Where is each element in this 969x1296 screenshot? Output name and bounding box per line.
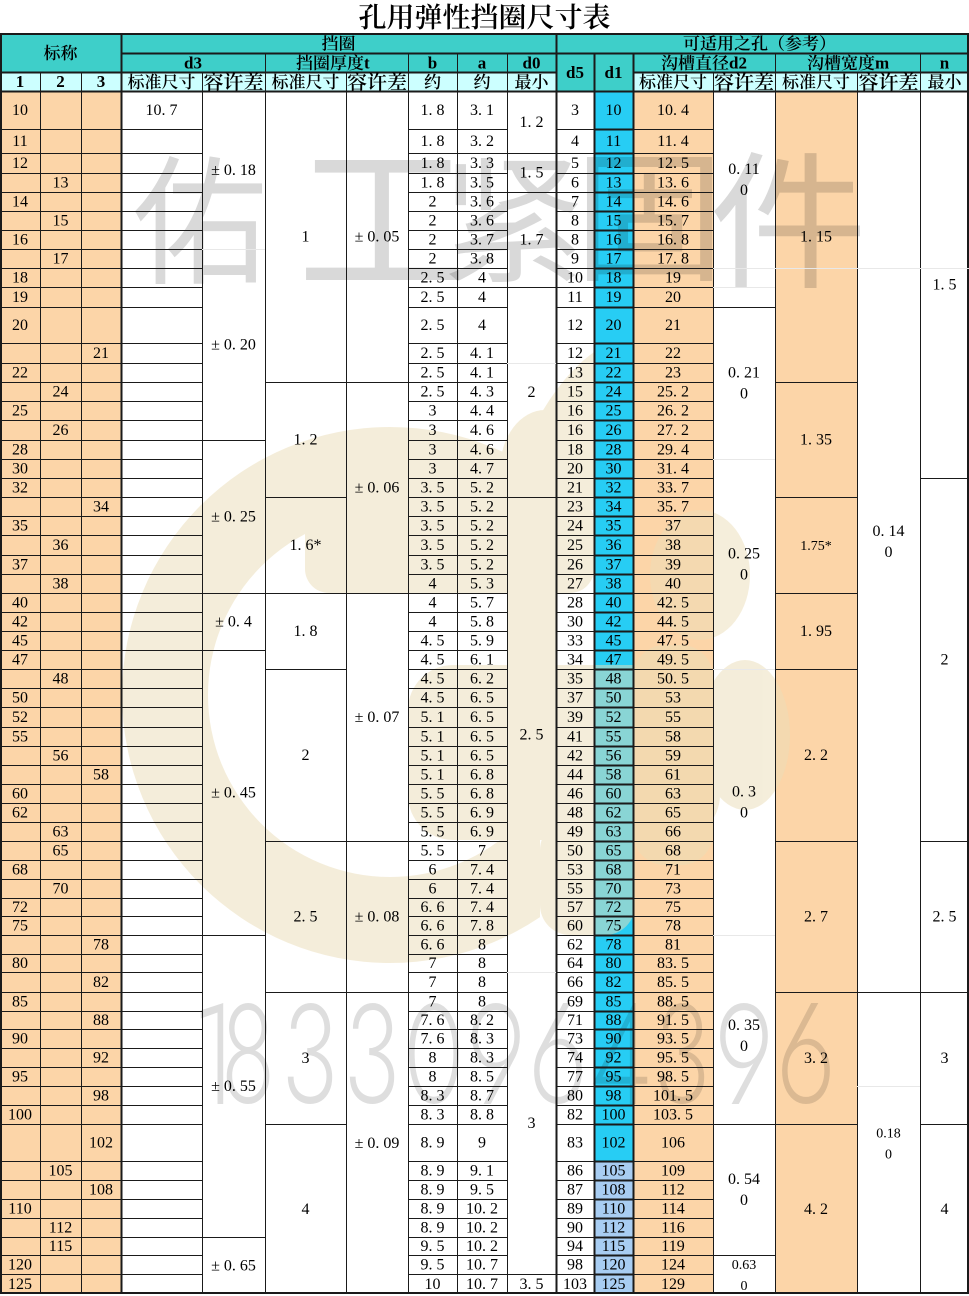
svg-text:0: 0 xyxy=(740,1038,748,1055)
svg-text:69: 69 xyxy=(567,994,583,1011)
svg-text:6. 5: 6. 5 xyxy=(470,729,494,746)
svg-text:46: 46 xyxy=(567,786,583,803)
svg-text:15: 15 xyxy=(53,213,69,230)
svg-text:63: 63 xyxy=(53,824,69,841)
svg-text:4: 4 xyxy=(478,317,486,334)
svg-text:± 0. 4: ± 0. 4 xyxy=(215,614,252,631)
svg-text:13: 13 xyxy=(53,175,69,192)
svg-text:6. 9: 6. 9 xyxy=(470,805,494,822)
svg-text:62: 62 xyxy=(606,805,622,822)
svg-text:20: 20 xyxy=(665,289,681,306)
svg-text:100: 100 xyxy=(8,1107,32,1124)
svg-text:13: 13 xyxy=(606,175,622,192)
svg-text:32: 32 xyxy=(12,480,28,497)
svg-text:2. 5: 2. 5 xyxy=(933,909,957,926)
svg-text:40: 40 xyxy=(606,595,622,612)
svg-text:65: 65 xyxy=(665,805,681,822)
svg-text:± 0. 07: ± 0. 07 xyxy=(355,709,400,726)
svg-text:2. 5: 2. 5 xyxy=(421,345,445,362)
svg-text:108: 108 xyxy=(602,1182,626,1199)
svg-text:6. 9: 6. 9 xyxy=(470,824,494,841)
svg-text:40: 40 xyxy=(12,595,28,612)
svg-text:2. 5: 2. 5 xyxy=(421,384,445,401)
svg-text:7. 4: 7. 4 xyxy=(470,899,494,916)
svg-text:0: 0 xyxy=(885,1148,892,1163)
svg-text:55: 55 xyxy=(12,729,28,746)
svg-text:85: 85 xyxy=(12,994,28,1011)
svg-text:80: 80 xyxy=(567,1088,583,1105)
svg-text:62: 62 xyxy=(567,937,583,954)
svg-text:10. 2: 10. 2 xyxy=(466,1220,498,1237)
svg-text:3. 7: 3. 7 xyxy=(470,232,494,249)
svg-text:81: 81 xyxy=(665,937,681,954)
svg-text:42: 42 xyxy=(567,748,583,765)
svg-text:13. 6: 13. 6 xyxy=(657,175,689,192)
svg-text:21: 21 xyxy=(567,480,583,497)
svg-text:87: 87 xyxy=(567,1182,583,1199)
svg-text:22: 22 xyxy=(665,345,681,362)
svg-text:1. 2: 1. 2 xyxy=(294,432,318,449)
svg-text:77: 77 xyxy=(567,1069,583,1086)
svg-text:14: 14 xyxy=(12,194,28,211)
svg-text:65: 65 xyxy=(606,843,622,860)
svg-text:6. 6: 6. 6 xyxy=(421,937,445,954)
svg-text:75: 75 xyxy=(12,918,28,935)
svg-text:34: 34 xyxy=(567,652,583,669)
svg-text:0. 54: 0. 54 xyxy=(728,1171,760,1188)
svg-text:0.63: 0.63 xyxy=(732,1258,757,1273)
svg-text:14: 14 xyxy=(606,194,622,211)
svg-text:0: 0 xyxy=(740,1192,748,1209)
svg-text:10. 2: 10. 2 xyxy=(466,1201,498,1218)
svg-text:5. 5: 5. 5 xyxy=(421,786,445,803)
svg-text:75: 75 xyxy=(665,899,681,916)
svg-text:2. 5: 2. 5 xyxy=(421,317,445,334)
svg-text:58: 58 xyxy=(606,767,622,784)
svg-text:39: 39 xyxy=(665,557,681,574)
svg-text:42. 5: 42. 5 xyxy=(657,595,689,612)
svg-text:24: 24 xyxy=(53,384,69,401)
svg-text:3. 6: 3. 6 xyxy=(470,213,494,230)
svg-text:t: t xyxy=(364,54,370,73)
svg-text:7: 7 xyxy=(429,994,437,1011)
svg-text:5. 2: 5. 2 xyxy=(470,537,494,554)
svg-text:114: 114 xyxy=(661,1201,684,1218)
svg-text:125: 125 xyxy=(602,1276,626,1293)
svg-text:1. 8: 1. 8 xyxy=(421,155,445,172)
svg-text:9. 1: 9. 1 xyxy=(470,1163,494,1180)
svg-text:90: 90 xyxy=(606,1031,622,1048)
svg-text:95: 95 xyxy=(606,1069,622,1086)
svg-text:4. 5: 4. 5 xyxy=(421,652,445,669)
svg-text:1. 2: 1. 2 xyxy=(520,114,544,131)
svg-text:± 0. 08: ± 0. 08 xyxy=(355,909,400,926)
svg-text:2: 2 xyxy=(56,72,65,91)
svg-text:4: 4 xyxy=(429,614,437,631)
svg-text:112: 112 xyxy=(49,1220,72,1237)
svg-text:101. 5: 101. 5 xyxy=(653,1088,693,1105)
svg-text:4. 1: 4. 1 xyxy=(470,345,494,362)
svg-text:73: 73 xyxy=(665,881,681,898)
svg-text:26: 26 xyxy=(53,422,69,439)
svg-text:1: 1 xyxy=(16,72,25,91)
svg-text:39: 39 xyxy=(567,709,583,726)
svg-text:58: 58 xyxy=(665,729,681,746)
svg-text:110: 110 xyxy=(8,1201,31,1218)
svg-text:63: 63 xyxy=(606,824,622,841)
svg-text:8: 8 xyxy=(571,232,579,249)
svg-text:0.18: 0.18 xyxy=(876,1127,901,1142)
svg-text:7: 7 xyxy=(478,843,486,860)
svg-text:110: 110 xyxy=(602,1201,625,1218)
svg-text:2: 2 xyxy=(528,384,536,401)
svg-text:49. 5: 49. 5 xyxy=(657,652,689,669)
svg-text:4: 4 xyxy=(429,595,437,612)
svg-text:8. 5: 8. 5 xyxy=(470,1069,494,1086)
svg-text:98. 5: 98. 5 xyxy=(657,1069,689,1086)
svg-text:36: 36 xyxy=(53,537,69,554)
svg-text:52: 52 xyxy=(12,709,28,726)
svg-text:120: 120 xyxy=(602,1257,626,1274)
svg-text:± 0. 09: ± 0. 09 xyxy=(355,1135,400,1152)
svg-text:5. 2: 5. 2 xyxy=(470,499,494,516)
svg-text:8. 9: 8. 9 xyxy=(421,1182,445,1199)
svg-text:82: 82 xyxy=(606,974,622,991)
svg-text:4. 5: 4. 5 xyxy=(421,633,445,650)
svg-text:5. 2: 5. 2 xyxy=(470,518,494,535)
svg-text:20: 20 xyxy=(606,317,622,334)
svg-text:8. 9: 8. 9 xyxy=(421,1220,445,1237)
svg-text:5. 2: 5. 2 xyxy=(470,480,494,497)
svg-text:3. 1: 3. 1 xyxy=(470,102,494,119)
svg-text:2. 5: 2. 5 xyxy=(421,270,445,287)
svg-text:0: 0 xyxy=(740,567,748,584)
svg-text:8. 3: 8. 3 xyxy=(470,1031,494,1048)
svg-text:3. 5: 3. 5 xyxy=(421,537,445,554)
svg-text:1. 5: 1. 5 xyxy=(520,165,544,182)
svg-text:72: 72 xyxy=(606,899,622,916)
svg-text:38: 38 xyxy=(53,576,69,593)
svg-text:95: 95 xyxy=(12,1069,28,1086)
svg-text:9: 9 xyxy=(571,251,579,268)
svg-text:115: 115 xyxy=(49,1238,72,1255)
svg-text:11: 11 xyxy=(606,133,621,150)
svg-text:25. 2: 25. 2 xyxy=(657,384,689,401)
svg-text:75: 75 xyxy=(606,918,622,935)
svg-text:35: 35 xyxy=(606,518,622,535)
svg-text:10: 10 xyxy=(567,270,583,287)
svg-text:4: 4 xyxy=(941,1201,949,1218)
svg-text:4. 7: 4. 7 xyxy=(470,461,494,478)
svg-text:5. 5: 5. 5 xyxy=(421,824,445,841)
svg-text:16: 16 xyxy=(606,232,622,249)
svg-text:7. 6: 7. 6 xyxy=(421,1031,445,1048)
svg-text:70: 70 xyxy=(606,881,622,898)
svg-text:15: 15 xyxy=(606,213,622,230)
svg-text:7. 6: 7. 6 xyxy=(421,1012,445,1029)
svg-text:119: 119 xyxy=(661,1238,684,1255)
svg-text:8: 8 xyxy=(571,213,579,230)
svg-text:8. 8: 8. 8 xyxy=(470,1107,494,1124)
svg-text:24: 24 xyxy=(567,518,583,535)
svg-text:50: 50 xyxy=(12,690,28,707)
svg-text:61: 61 xyxy=(665,767,681,784)
svg-text:8. 9: 8. 9 xyxy=(421,1201,445,1218)
svg-text:37: 37 xyxy=(567,690,583,707)
svg-text:4. 5: 4. 5 xyxy=(421,671,445,688)
svg-text:3. 5: 3. 5 xyxy=(421,499,445,516)
svg-text:3: 3 xyxy=(429,422,437,439)
svg-text:42: 42 xyxy=(606,614,622,631)
svg-text:70: 70 xyxy=(53,881,69,898)
svg-text:4: 4 xyxy=(429,576,437,593)
svg-text:72: 72 xyxy=(12,899,28,916)
svg-text:± 0. 06: ± 0. 06 xyxy=(355,480,400,497)
svg-text:1. 6*: 1. 6* xyxy=(290,537,322,554)
svg-text:19: 19 xyxy=(606,289,622,306)
svg-text:95. 5: 95. 5 xyxy=(657,1050,689,1067)
svg-text:10. 7: 10. 7 xyxy=(146,102,178,119)
svg-text:2: 2 xyxy=(941,652,949,669)
svg-text:26. 2: 26. 2 xyxy=(657,403,689,420)
svg-text:17: 17 xyxy=(53,251,69,268)
svg-text:83: 83 xyxy=(567,1135,583,1152)
svg-text:21: 21 xyxy=(606,345,622,362)
svg-text:3: 3 xyxy=(429,461,437,478)
svg-text:50. 5: 50. 5 xyxy=(657,671,689,688)
svg-text:0. 25: 0. 25 xyxy=(728,546,760,563)
svg-text:± 0. 45: ± 0. 45 xyxy=(211,785,256,802)
svg-text:42: 42 xyxy=(12,614,28,631)
svg-text:60: 60 xyxy=(12,786,28,803)
svg-text:90: 90 xyxy=(567,1220,583,1237)
svg-text:6: 6 xyxy=(429,881,437,898)
svg-text:28: 28 xyxy=(567,595,583,612)
svg-text:2. 5: 2. 5 xyxy=(421,289,445,306)
svg-text:56: 56 xyxy=(53,748,69,765)
svg-text:48: 48 xyxy=(567,805,583,822)
svg-text:47. 5: 47. 5 xyxy=(657,633,689,650)
svg-text:71: 71 xyxy=(665,862,681,879)
svg-text:71: 71 xyxy=(567,1012,583,1029)
svg-text:3. 5: 3. 5 xyxy=(470,175,494,192)
svg-text:1. 15: 1. 15 xyxy=(800,229,832,246)
svg-text:33: 33 xyxy=(567,633,583,650)
svg-text:0: 0 xyxy=(740,386,748,403)
svg-text:4: 4 xyxy=(571,133,579,150)
svg-text:3: 3 xyxy=(97,72,106,91)
svg-text:0. 21: 0. 21 xyxy=(728,365,760,382)
svg-text:59: 59 xyxy=(665,748,681,765)
svg-text:16. 8: 16. 8 xyxy=(657,232,689,249)
svg-text:9. 5: 9. 5 xyxy=(470,1182,494,1199)
svg-text:12. 5: 12. 5 xyxy=(657,155,689,172)
svg-text:26: 26 xyxy=(567,557,583,574)
svg-text:3. 2: 3. 2 xyxy=(804,1050,828,1067)
svg-text:88: 88 xyxy=(606,1012,622,1029)
svg-text:7. 4: 7. 4 xyxy=(470,881,494,898)
svg-text:d2: d2 xyxy=(729,54,747,73)
svg-text:35: 35 xyxy=(12,518,28,535)
svg-text:22: 22 xyxy=(606,365,622,382)
svg-text:48: 48 xyxy=(606,671,622,688)
svg-text:± 0. 20: ± 0. 20 xyxy=(211,337,256,354)
svg-text:60: 60 xyxy=(606,786,622,803)
svg-text:6. 2: 6. 2 xyxy=(470,671,494,688)
svg-text:3. 6: 3. 6 xyxy=(470,194,494,211)
svg-text:3. 8: 3. 8 xyxy=(470,251,494,268)
svg-text:12: 12 xyxy=(606,155,622,172)
svg-text:1. 35: 1. 35 xyxy=(800,432,832,449)
svg-text:d3: d3 xyxy=(184,54,202,73)
svg-text:3. 5: 3. 5 xyxy=(520,1276,544,1293)
svg-text:1: 1 xyxy=(302,229,310,246)
svg-text:18: 18 xyxy=(567,442,583,459)
svg-text:30: 30 xyxy=(567,614,583,631)
svg-text:10. 4: 10. 4 xyxy=(657,102,689,119)
svg-text:115: 115 xyxy=(602,1238,625,1255)
svg-text:86: 86 xyxy=(567,1163,583,1180)
svg-text:89: 89 xyxy=(567,1201,583,1218)
svg-text:6. 6: 6. 6 xyxy=(421,899,445,916)
svg-text:23: 23 xyxy=(665,365,681,382)
svg-text:64: 64 xyxy=(567,955,583,972)
svg-text:6. 5: 6. 5 xyxy=(470,748,494,765)
svg-text:50: 50 xyxy=(606,690,622,707)
svg-text:8: 8 xyxy=(478,937,486,954)
svg-text:8. 9: 8. 9 xyxy=(421,1163,445,1180)
svg-text:6. 8: 6. 8 xyxy=(470,767,494,784)
svg-text:1. 8: 1. 8 xyxy=(421,175,445,192)
svg-text:3: 3 xyxy=(571,102,579,119)
svg-text:8: 8 xyxy=(478,955,486,972)
svg-text:4. 6: 4. 6 xyxy=(470,442,494,459)
svg-text:22: 22 xyxy=(12,365,28,382)
svg-text:37: 37 xyxy=(606,557,622,574)
svg-text:129: 129 xyxy=(661,1276,685,1293)
svg-text:1. 8: 1. 8 xyxy=(421,102,445,119)
svg-text:5. 3: 5. 3 xyxy=(470,576,494,593)
svg-text:18: 18 xyxy=(12,270,28,287)
svg-text:83. 5: 83. 5 xyxy=(657,955,689,972)
svg-text:9: 9 xyxy=(478,1135,486,1152)
svg-text:8. 9: 8. 9 xyxy=(421,1135,445,1152)
svg-text:102: 102 xyxy=(89,1135,113,1152)
svg-text:93. 5: 93. 5 xyxy=(657,1031,689,1048)
svg-text:91. 5: 91. 5 xyxy=(657,1012,689,1029)
svg-text:8. 3: 8. 3 xyxy=(421,1088,445,1105)
svg-text:55: 55 xyxy=(567,881,583,898)
svg-text:9. 5: 9. 5 xyxy=(421,1257,445,1274)
svg-text:56: 56 xyxy=(606,748,622,765)
svg-text:27. 2: 27. 2 xyxy=(657,422,689,439)
svg-text:2. 5: 2. 5 xyxy=(520,727,544,744)
svg-text:52: 52 xyxy=(606,709,622,726)
svg-text:20: 20 xyxy=(12,317,28,334)
svg-text:5. 5: 5. 5 xyxy=(421,843,445,860)
svg-text:1.75*: 1.75* xyxy=(800,539,832,554)
svg-text:33. 7: 33. 7 xyxy=(657,480,689,497)
svg-text:0. 14: 0. 14 xyxy=(873,523,905,540)
svg-text:103: 103 xyxy=(563,1276,587,1293)
svg-text:50: 50 xyxy=(567,843,583,860)
svg-text:2: 2 xyxy=(429,251,437,268)
svg-text:30: 30 xyxy=(606,461,622,478)
svg-text:d5: d5 xyxy=(566,63,584,82)
svg-text:98: 98 xyxy=(93,1088,109,1105)
svg-text:68: 68 xyxy=(606,862,622,879)
svg-text:5. 1: 5. 1 xyxy=(421,748,445,765)
svg-text:21: 21 xyxy=(93,345,109,362)
svg-text:85: 85 xyxy=(606,994,622,1011)
svg-text:82: 82 xyxy=(567,1107,583,1124)
svg-text:1. 5: 1. 5 xyxy=(933,277,957,294)
svg-text:4: 4 xyxy=(478,270,486,287)
svg-text:19: 19 xyxy=(12,289,28,306)
svg-text:6. 5: 6. 5 xyxy=(470,690,494,707)
svg-text:4. 5: 4. 5 xyxy=(421,690,445,707)
svg-text:2. 5: 2. 5 xyxy=(421,365,445,382)
svg-text:3. 3: 3. 3 xyxy=(470,155,494,172)
svg-text:100: 100 xyxy=(602,1107,626,1124)
svg-text:8. 2: 8. 2 xyxy=(470,1012,494,1029)
svg-text:11: 11 xyxy=(567,289,582,306)
svg-text:34: 34 xyxy=(606,499,622,516)
svg-text:0. 3: 0. 3 xyxy=(732,784,756,801)
svg-text:8: 8 xyxy=(478,994,486,1011)
svg-text:3. 5: 3. 5 xyxy=(421,480,445,497)
svg-text:6: 6 xyxy=(429,862,437,879)
svg-text:112: 112 xyxy=(661,1182,684,1199)
svg-text:d1: d1 xyxy=(605,63,623,82)
svg-text:17. 8: 17. 8 xyxy=(657,251,689,268)
svg-text:0: 0 xyxy=(741,1279,748,1294)
svg-text:2: 2 xyxy=(429,194,437,211)
svg-text:4. 3: 4. 3 xyxy=(470,384,494,401)
svg-text:78: 78 xyxy=(93,937,109,954)
svg-text:4. 4: 4. 4 xyxy=(470,403,494,420)
svg-text:3. 2: 3. 2 xyxy=(470,133,494,150)
svg-text:10: 10 xyxy=(425,1276,441,1293)
svg-text:11. 4: 11. 4 xyxy=(657,133,688,150)
svg-text:19: 19 xyxy=(665,270,681,287)
svg-text:12: 12 xyxy=(567,345,583,362)
svg-text:37: 37 xyxy=(12,557,28,574)
svg-text:27: 27 xyxy=(567,576,583,593)
svg-text:16: 16 xyxy=(12,232,28,249)
svg-text:16: 16 xyxy=(567,422,583,439)
svg-text:m: m xyxy=(875,54,889,73)
svg-text:92: 92 xyxy=(93,1050,109,1067)
svg-text:55: 55 xyxy=(606,729,622,746)
svg-text:98: 98 xyxy=(606,1088,622,1105)
svg-text:8. 3: 8. 3 xyxy=(421,1107,445,1124)
svg-text:94: 94 xyxy=(567,1238,583,1255)
svg-text:125: 125 xyxy=(8,1276,32,1293)
svg-text:3. 5: 3. 5 xyxy=(421,557,445,574)
svg-text:35. 7: 35. 7 xyxy=(657,499,689,516)
svg-text:31. 4: 31. 4 xyxy=(657,461,689,478)
svg-text:4: 4 xyxy=(302,1201,310,1218)
svg-text:16: 16 xyxy=(567,403,583,420)
svg-text:49: 49 xyxy=(567,824,583,841)
svg-text:47: 47 xyxy=(606,652,622,669)
svg-text:a: a xyxy=(478,54,487,73)
svg-text:92: 92 xyxy=(606,1050,622,1067)
svg-text:n: n xyxy=(940,54,950,73)
svg-text:112: 112 xyxy=(602,1220,625,1237)
svg-text:80: 80 xyxy=(606,955,622,972)
